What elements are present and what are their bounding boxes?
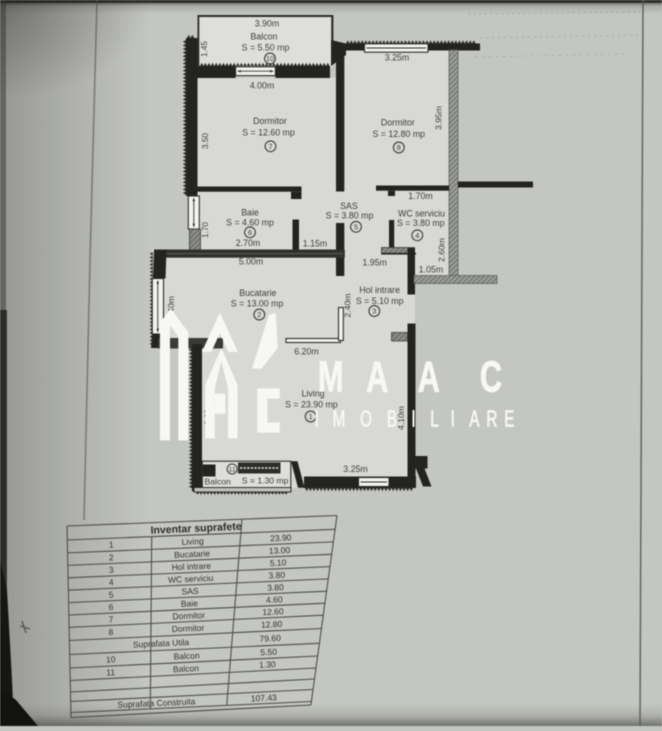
svg-text:S = 4.60 mp: S = 4.60 mp — [226, 218, 274, 228]
svg-text:Dormitor: Dormitor — [253, 116, 287, 126]
svg-text:1.45: 1.45 — [200, 41, 209, 57]
svg-text:3: 3 — [372, 307, 376, 316]
svg-text:I: I — [451, 406, 455, 432]
svg-text:6: 6 — [248, 228, 252, 237]
svg-text:11: 11 — [106, 667, 116, 677]
svg-text:6: 6 — [108, 602, 113, 612]
svg-text:5: 5 — [108, 589, 113, 599]
svg-text:5.50: 5.50 — [260, 647, 277, 658]
svg-text:107.43: 107.43 — [251, 692, 278, 703]
svg-text:Dormitor: Dormitor — [172, 623, 205, 634]
svg-text:SAS: SAS — [340, 201, 358, 211]
svg-text:4.60: 4.60 — [266, 594, 283, 605]
svg-text:E: E — [504, 406, 514, 432]
svg-text:2.40m: 2.40m — [342, 294, 352, 318]
svg-text:S = 5.50 mp: S = 5.50 mp — [242, 43, 290, 53]
svg-text:I: I — [411, 406, 415, 432]
svg-text:2: 2 — [109, 552, 114, 562]
svg-text:2.60m: 2.60m — [437, 238, 447, 262]
svg-text:7: 7 — [268, 142, 272, 151]
svg-text:8: 8 — [108, 627, 113, 637]
svg-text:SAS: SAS — [181, 586, 199, 597]
svg-text:3.80: 3.80 — [267, 582, 284, 593]
svg-text:1.70m: 1.70m — [408, 191, 432, 201]
svg-text:Balcon: Balcon — [173, 663, 200, 674]
svg-text:10: 10 — [266, 54, 274, 63]
svg-text:8: 8 — [397, 143, 401, 152]
svg-text:A: A — [366, 353, 388, 402]
svg-text:C: C — [480, 353, 502, 402]
svg-text:1.95m: 1.95m — [362, 257, 386, 267]
svg-text:12.60: 12.60 — [262, 606, 284, 617]
svg-text:3.90m: 3.90m — [255, 19, 279, 29]
svg-text:3.25m: 3.25m — [343, 464, 367, 474]
svg-text:4.00m: 4.00m — [250, 81, 274, 91]
svg-text:B: B — [387, 406, 397, 432]
svg-text:1.70: 1.70 — [201, 222, 210, 238]
svg-text:5: 5 — [354, 222, 358, 231]
svg-text:S = 13.00 mp: S = 13.00 mp — [231, 298, 284, 308]
svg-text:Bucatarie: Bucatarie — [174, 548, 211, 560]
svg-text:12.80: 12.80 — [261, 619, 283, 630]
svg-text:S = 1.30 mp: S = 1.30 mp — [242, 475, 289, 485]
svg-text:3.80: 3.80 — [268, 570, 285, 581]
svg-text:2: 2 — [257, 310, 261, 319]
svg-text:M: M — [333, 406, 346, 432]
svg-text:4.10m: 4.10m — [396, 406, 406, 430]
svg-text:S = 3.80 mp: S = 3.80 mp — [397, 218, 445, 228]
svg-text:11: 11 — [229, 467, 236, 474]
svg-text:Hol intrare: Hol intrare — [359, 285, 400, 295]
svg-text:A: A — [469, 406, 479, 432]
svg-text:4: 4 — [109, 577, 114, 587]
svg-text:13.00: 13.00 — [269, 545, 291, 556]
svg-text:S = 5.10 mp: S = 5.10 mp — [356, 296, 404, 306]
svg-text:Hol intrare: Hol intrare — [172, 561, 212, 573]
svg-text:1.30: 1.30 — [259, 659, 276, 670]
svg-text:Bucatarie: Bucatarie — [239, 288, 276, 298]
svg-text:5.10: 5.10 — [270, 557, 287, 568]
svg-text:Baie: Baie — [181, 598, 199, 609]
svg-text:3.50: 3.50 — [201, 133, 210, 149]
svg-text:23.90: 23.90 — [270, 532, 292, 543]
svg-text:1: 1 — [109, 540, 114, 550]
svg-text:S = 12.60 mp: S = 12.60 mp — [242, 128, 295, 138]
svg-text:7: 7 — [108, 614, 113, 624]
svg-text:1.05m: 1.05m — [419, 265, 443, 275]
svg-text:M: M — [318, 353, 344, 402]
svg-text:3: 3 — [109, 565, 114, 575]
svg-text:3.95m: 3.95m — [434, 106, 444, 130]
svg-text:Dormitor: Dormitor — [172, 610, 205, 621]
svg-text:Dormitor: Dormitor — [381, 118, 415, 128]
svg-text:WC serviciu: WC serviciu — [168, 573, 214, 585]
svg-text:4: 4 — [415, 231, 419, 240]
svg-text:Baie: Baie — [241, 208, 259, 218]
svg-text:6.20m: 6.20m — [294, 347, 318, 357]
svg-text:Living: Living — [181, 536, 204, 547]
svg-text:L: L — [430, 406, 439, 432]
svg-text:3.25m: 3.25m — [385, 53, 409, 63]
svg-text:79.60: 79.60 — [259, 633, 281, 644]
svg-text:1.15m: 1.15m — [303, 239, 327, 249]
svg-text:R: R — [486, 406, 497, 432]
svg-text:I: I — [314, 406, 318, 432]
svg-text:5.00m: 5.00m — [239, 257, 263, 267]
svg-text:10: 10 — [106, 654, 116, 664]
svg-text:Balcon: Balcon — [205, 476, 231, 486]
svg-text:Balcon: Balcon — [251, 32, 278, 42]
svg-text:S = 3.80 mp: S = 3.80 mp — [326, 211, 374, 221]
svg-text:Balcon: Balcon — [173, 650, 200, 661]
svg-text:A: A — [418, 353, 440, 402]
svg-text:2.70m: 2.70m — [236, 238, 260, 248]
svg-text:S = 12.80 mp: S = 12.80 mp — [373, 129, 426, 139]
svg-text:WC serviciu: WC serviciu — [398, 208, 445, 218]
svg-text:1: 1 — [309, 412, 313, 421]
svg-text:O: O — [360, 406, 372, 432]
